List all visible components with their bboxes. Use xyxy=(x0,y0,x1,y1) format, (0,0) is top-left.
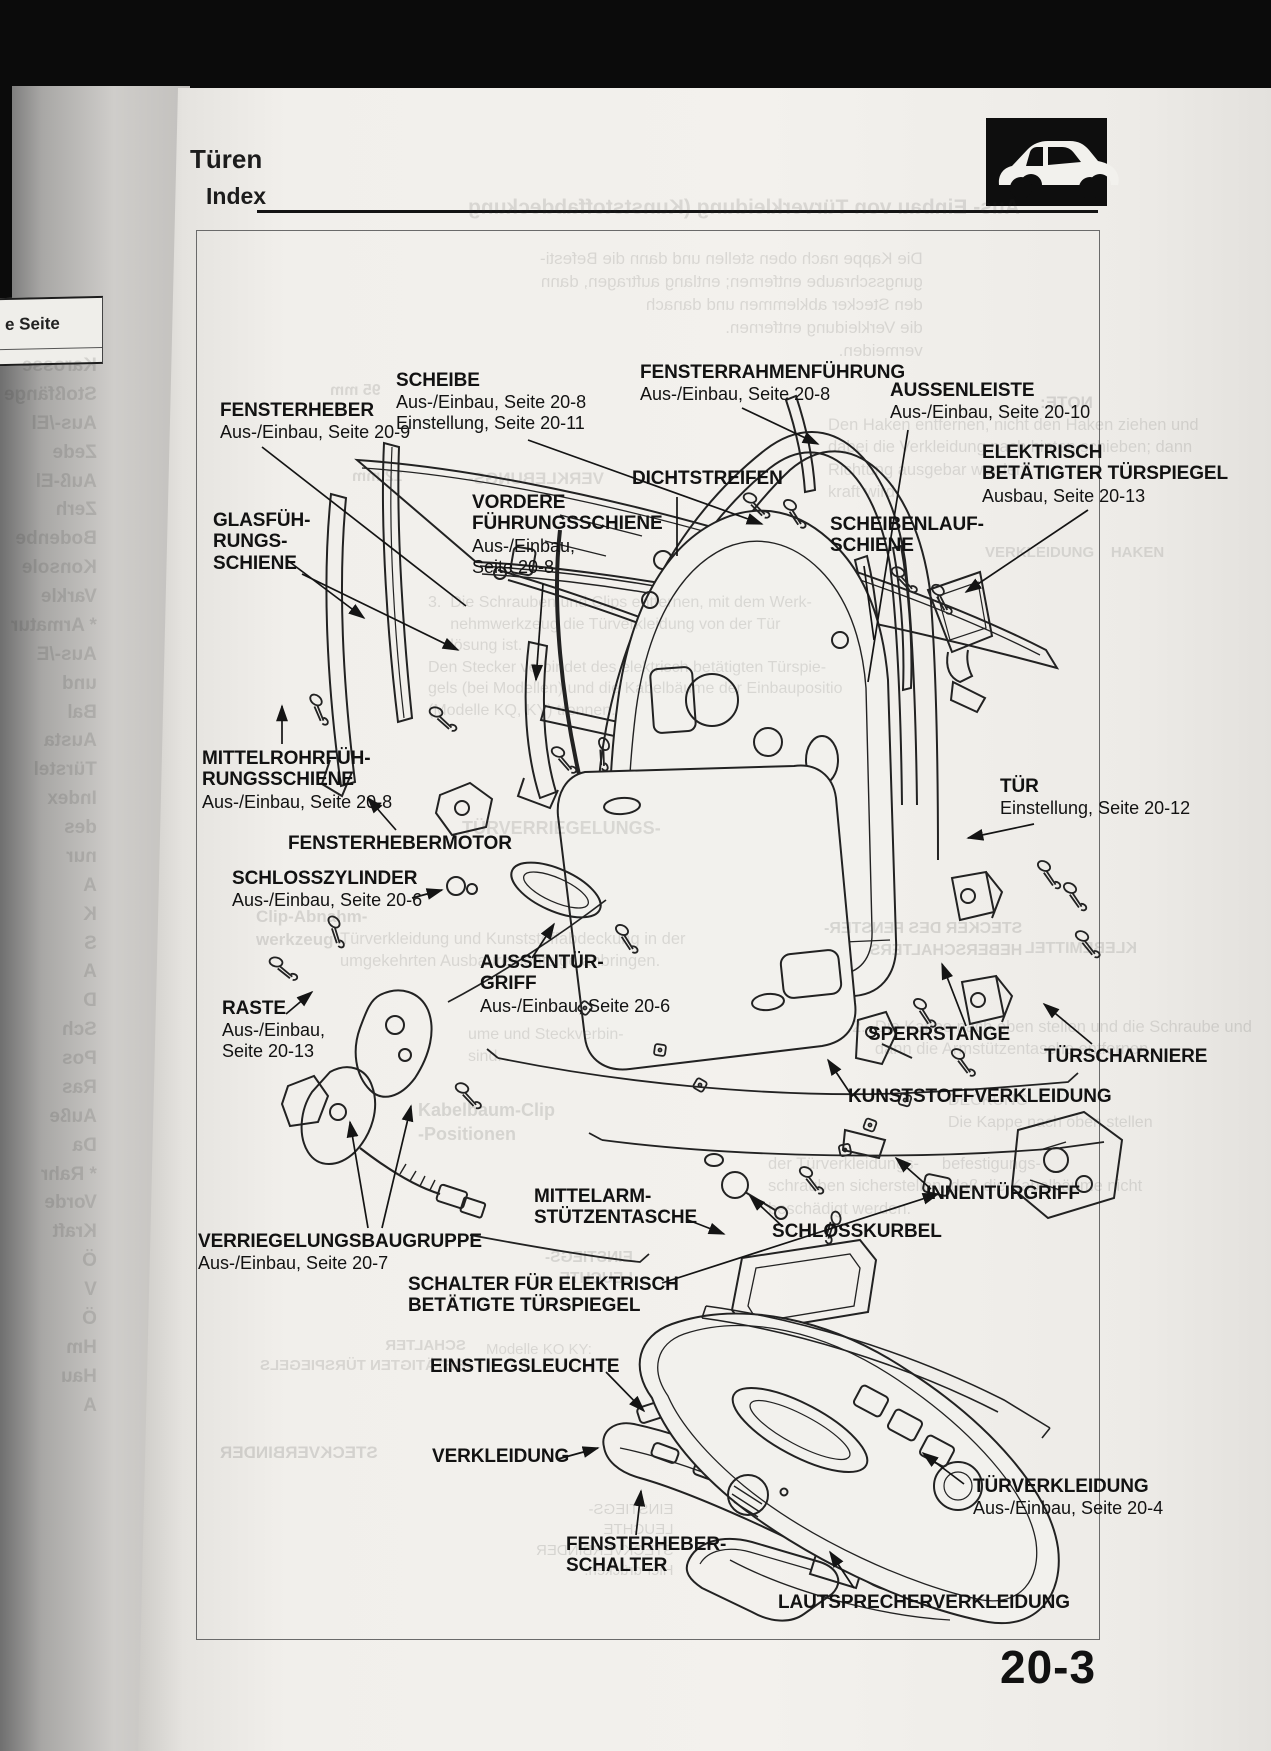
label-dichtstreifen: DICHTSTREIFEN xyxy=(632,468,783,489)
label-fensterheber-schalter: FENSTERHEBER- SCHALTER xyxy=(566,1534,726,1577)
label-aussenleiste: AUSSENLEISTEAus-/Einbau, Seite 20-10 xyxy=(890,380,1090,423)
page-title: Türen xyxy=(190,146,262,172)
label-verkleidung: VERKLEIDUNG xyxy=(432,1446,569,1467)
label-elektrischer-tuerspiegel: ELEKTRISCH BETÄTIGTER TÜRSPIEGELAusbau, … xyxy=(982,442,1228,507)
label-sperrstange: SPERRSTANGE xyxy=(868,1024,1010,1045)
label-tuerscharniere: TÜRSCHARNIERE xyxy=(1044,1046,1207,1067)
header-rule xyxy=(257,210,1098,213)
label-mittelrohrfuehrungsschiene: MITTELROHRFÜH- RUNGSSCHIENEAus-/Einbau, … xyxy=(202,748,392,813)
label-innentuergriff: INNENTÜRGRIFF xyxy=(926,1183,1080,1204)
label-mittelarm-stuetzentasche: MITTELARM- STÜTZENTASCHE xyxy=(534,1186,697,1229)
label-fensterheber: FENSTERHEBERAus-/Einbau, Seite 20-9 xyxy=(220,400,410,443)
page-subtitle: Index xyxy=(206,185,266,208)
divider xyxy=(0,347,102,350)
edge-page-column-header: e Seite xyxy=(0,296,103,366)
label-lautsprecherverkleidung: LAUTSPRECHERVERKLEIDUNG xyxy=(778,1592,1070,1613)
label-fensterhebermotor: FENSTERHEBERMOTOR xyxy=(288,833,512,854)
scanner-black-band xyxy=(0,0,1271,92)
label-glasfuehrungsschiene: GLASFÜH- RUNGS- SCHIENE xyxy=(213,510,310,574)
label-vordere-fuehrungsschiene: VORDERE FÜHRUNGSSCHIENEAus-/Einbau, Seit… xyxy=(472,492,663,578)
label-einstiegsleuchte: EINSTIEGSLEUCHTE xyxy=(430,1356,619,1377)
label-schalter-fuer-tuerspiegel: SCHALTER FÜR ELEKTRISCH BETÄTIGTE TÜRSPI… xyxy=(408,1274,679,1317)
page-number: 20-3 xyxy=(1000,1644,1096,1690)
label-tuerverkleidung: TÜRVERKLEIDUNGAus-/Einbau, Seite 20-4 xyxy=(973,1476,1163,1519)
label-kunststoffverkleidung: KUNSTSTOFFVERKLEIDUNG xyxy=(848,1086,1112,1107)
label-schlosskurbel: SCHLOSSKURBEL xyxy=(772,1221,942,1242)
edge-page-header-text: e Seite xyxy=(5,315,60,333)
label-tuer: TÜREinstellung, Seite 20-12 xyxy=(1000,776,1190,819)
label-schlosszylinder: SCHLOSSZYLINDERAus-/Einbau, Seite 20-6 xyxy=(232,868,422,911)
label-aussentuergriff: AUSSENTÜR- GRIFFAus-/Einbau, Seite 20-6 xyxy=(480,952,670,1017)
label-raste: RASTEAus-/Einbau, Seite 20-13 xyxy=(222,998,325,1062)
label-scheibe: SCHEIBEAus-/Einbau, Seite 20-8 Einstellu… xyxy=(396,370,586,434)
scanned-manual-page: e Seite Aus- Einbau von Türverkleidung (… xyxy=(0,0,1271,1751)
label-fensterrahmenfuehrung: FENSTERRAHMENFÜHRUNGAus-/Einbau, Seite 2… xyxy=(640,362,905,405)
label-scheibenlaufschiene: SCHEIBENLAUF- SCHIENE xyxy=(830,514,984,557)
label-verriegelungsbaugruppe: VERRIEGELUNGSBAUGRUPPEAus-/Einbau, Seite… xyxy=(198,1231,482,1274)
